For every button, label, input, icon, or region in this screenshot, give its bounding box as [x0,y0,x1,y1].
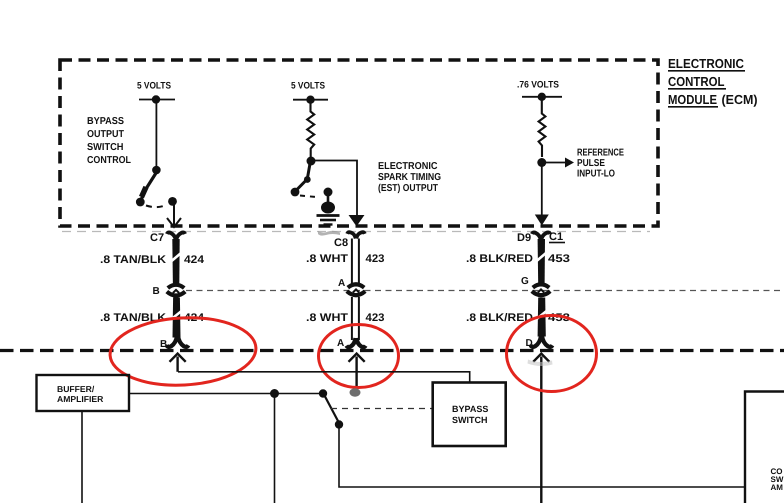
svg-text:SPARK TIMING: SPARK TIMING [378,172,441,183]
svg-text:BYPASS: BYPASS [87,116,124,127]
svg-text:REFERENCE: REFERENCE [577,148,624,159]
svg-text:D9: D9 [517,232,531,244]
svg-text:5 VOLTS: 5 VOLTS [291,81,325,92]
svg-text:423: 423 [366,312,385,324]
svg-text:INPUT-LO: INPUT-LO [577,169,615,180]
svg-text:.8 BLK/RED: .8 BLK/RED [466,312,533,324]
svg-text:SWITCH: SWITCH [452,415,488,425]
svg-text:.8 TAN/BLK: .8 TAN/BLK [100,254,166,266]
svg-text:.8 BLK/RED: .8 BLK/RED [466,253,533,265]
svg-text:424: 424 [184,254,205,266]
svg-text:AMPLIFIER: AMPLIFIER [57,394,104,404]
svg-text:C8: C8 [334,237,348,249]
svg-text:A: A [337,338,344,349]
svg-text:B: B [153,286,160,297]
svg-text:B: B [160,339,167,350]
svg-text:ELECTRONIC: ELECTRONIC [668,56,745,71]
svg-text:BUFFER/: BUFFER/ [57,384,95,394]
svg-text:MODULE: MODULE [668,92,717,107]
svg-text:CONTROL: CONTROL [87,155,131,166]
svg-text:OUTPUT: OUTPUT [87,129,124,140]
svg-text:AM: AM [771,483,784,492]
svg-text:453: 453 [548,253,570,265]
svg-text:(EST) OUTPUT: (EST) OUTPUT [378,183,438,194]
svg-text:5 VOLTS: 5 VOLTS [137,81,171,92]
svg-text:A: A [338,278,345,289]
svg-text:PULSE: PULSE [577,158,605,169]
svg-text:SWITCH: SWITCH [87,142,124,153]
svg-text:C7: C7 [150,232,164,244]
svg-text:CONTROL: CONTROL [668,74,725,89]
svg-text:.8 WHT: .8 WHT [306,312,348,324]
svg-text:BYPASS: BYPASS [452,404,488,414]
svg-text:ELECTRONIC: ELECTRONIC [378,161,438,172]
svg-text:G: G [521,276,529,287]
svg-text:.8 WHT: .8 WHT [306,253,348,265]
svg-text:423: 423 [366,253,385,265]
svg-text:(ECM): (ECM) [722,92,758,107]
svg-text:.76 VOLTS: .76 VOLTS [517,80,559,91]
